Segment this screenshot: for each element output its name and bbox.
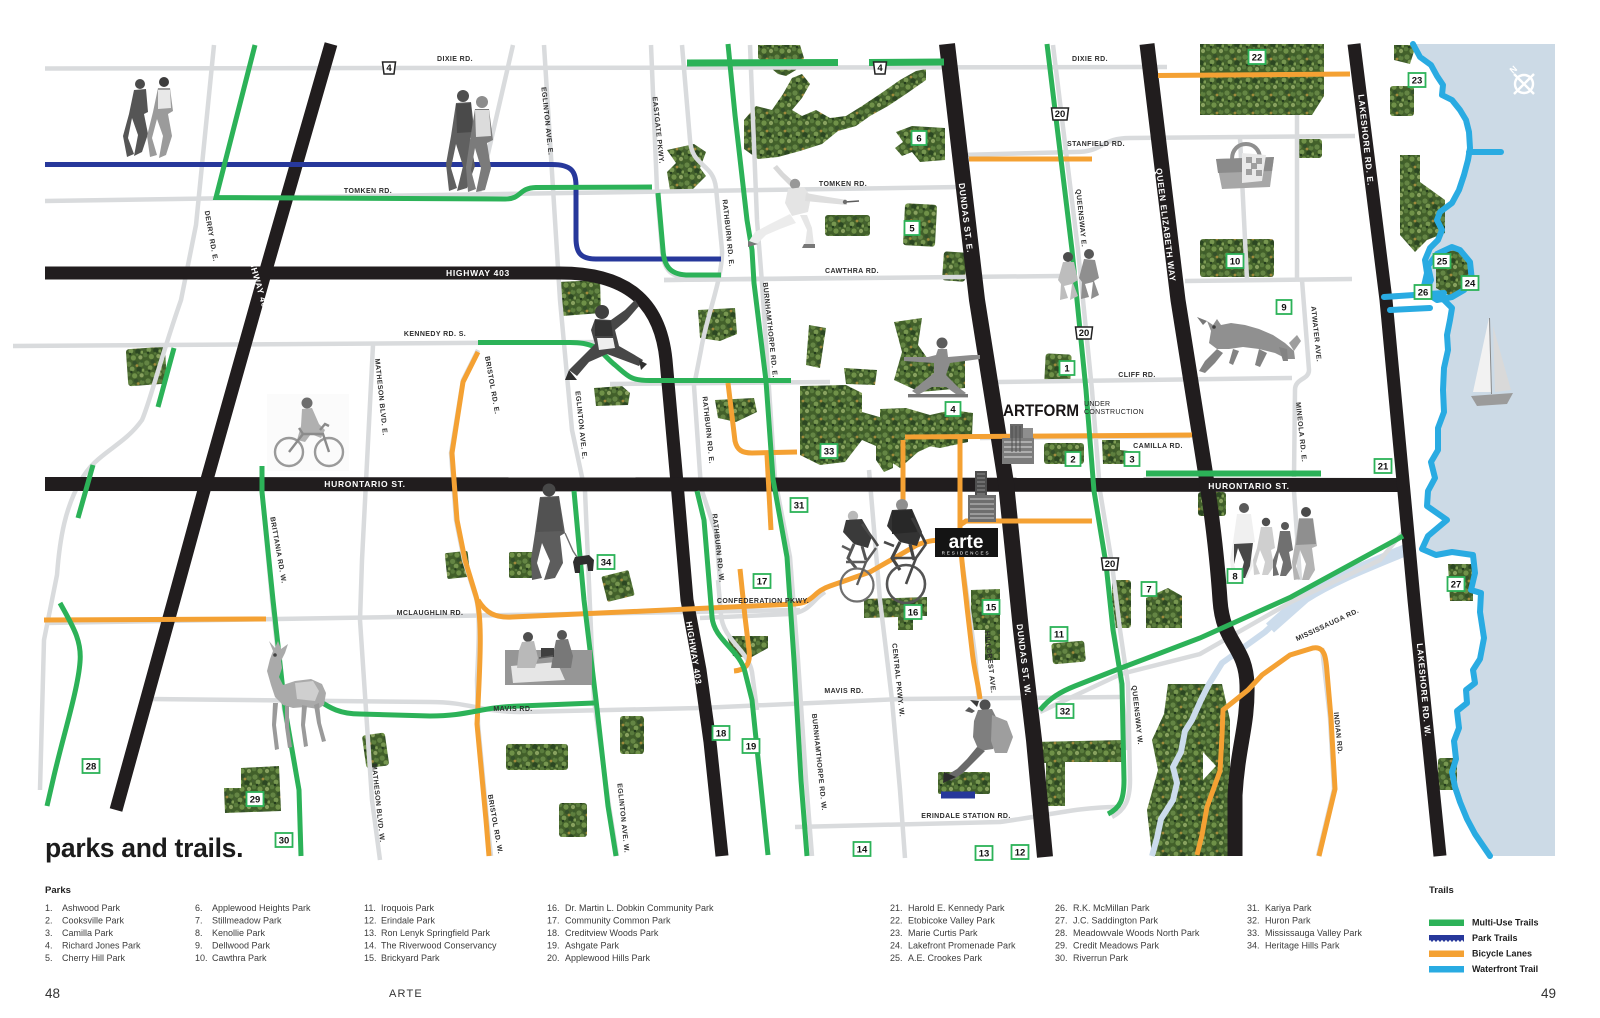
svg-text:5: 5 bbox=[909, 224, 915, 235]
svg-text:14: 14 bbox=[857, 845, 868, 856]
svg-text:Camilla Park: Camilla Park bbox=[62, 928, 114, 938]
svg-text:34: 34 bbox=[601, 558, 612, 569]
svg-text:21.: 21. bbox=[890, 903, 903, 913]
svg-text:Cooksville Park: Cooksville Park bbox=[62, 916, 125, 926]
svg-text:33: 33 bbox=[824, 447, 835, 458]
svg-text:32: 32 bbox=[1060, 707, 1071, 718]
svg-text:10: 10 bbox=[1230, 257, 1241, 268]
svg-text:29: 29 bbox=[250, 795, 261, 806]
svg-text:Credit Meadows Park: Credit Meadows Park bbox=[1073, 941, 1160, 951]
svg-text:19: 19 bbox=[746, 742, 757, 753]
svg-text:Stillmeadow Park: Stillmeadow Park bbox=[212, 916, 282, 926]
svg-text:19.: 19. bbox=[547, 941, 560, 951]
svg-text:MAVIS RD.: MAVIS RD. bbox=[493, 706, 532, 713]
svg-text:Riverrun Park: Riverrun Park bbox=[1073, 953, 1129, 963]
svg-text:21: 21 bbox=[1378, 462, 1389, 473]
svg-text:4: 4 bbox=[877, 63, 883, 74]
svg-text:HURONTARIO ST.: HURONTARIO ST. bbox=[324, 479, 405, 489]
svg-text:RESIDENCES: RESIDENCES bbox=[942, 551, 991, 556]
svg-text:Creditview Woods Park: Creditview Woods Park bbox=[565, 928, 659, 938]
svg-text:6.: 6. bbox=[195, 903, 203, 913]
svg-text:1: 1 bbox=[1064, 364, 1070, 375]
svg-text:parks and trails.: parks and trails. bbox=[45, 833, 243, 863]
svg-text:MAVIS RD.: MAVIS RD. bbox=[824, 688, 863, 695]
svg-text:20: 20 bbox=[1055, 109, 1066, 120]
svg-text:31: 31 bbox=[794, 501, 805, 512]
svg-text:8: 8 bbox=[1232, 572, 1237, 583]
svg-text:Etobicoke Valley Park: Etobicoke Valley Park bbox=[908, 916, 995, 926]
svg-text:24.: 24. bbox=[890, 941, 903, 951]
svg-text:Kenollie Park: Kenollie Park bbox=[212, 928, 266, 938]
svg-text:Huron Park: Huron Park bbox=[1265, 916, 1311, 926]
svg-text:The Riverwood Conservancy: The Riverwood Conservancy bbox=[381, 941, 497, 951]
svg-text:Bicycle Lanes: Bicycle Lanes bbox=[1472, 949, 1532, 959]
svg-text:Meadowvale Woods North Park: Meadowvale Woods North Park bbox=[1073, 928, 1200, 938]
svg-text:30.: 30. bbox=[1055, 953, 1068, 963]
svg-text:22.: 22. bbox=[890, 916, 903, 926]
svg-text:Community Common Park: Community Common Park bbox=[565, 916, 671, 926]
svg-text:ERINDALE STATION RD.: ERINDALE STATION RD. bbox=[921, 813, 1010, 820]
svg-text:20: 20 bbox=[1079, 328, 1090, 339]
svg-text:26: 26 bbox=[1418, 288, 1429, 299]
svg-text:49: 49 bbox=[1541, 986, 1556, 1001]
svg-text:Parks: Parks bbox=[45, 885, 71, 896]
svg-text:Multi-Use Trails: Multi-Use Trails bbox=[1472, 918, 1539, 928]
svg-text:15.: 15. bbox=[364, 953, 377, 963]
svg-text:2.: 2. bbox=[45, 916, 53, 926]
svg-text:13: 13 bbox=[979, 849, 990, 860]
svg-text:Kariya Park: Kariya Park bbox=[1265, 903, 1312, 913]
svg-text:9: 9 bbox=[1281, 303, 1286, 314]
svg-text:28: 28 bbox=[86, 762, 97, 773]
svg-text:Ron Lenyk Springfield Park: Ron Lenyk Springfield Park bbox=[381, 928, 491, 938]
svg-text:Heritage Hills Park: Heritage Hills Park bbox=[1265, 941, 1340, 951]
svg-text:TOMKEN RD.: TOMKEN RD. bbox=[819, 181, 867, 188]
svg-text:Marie Curtis Park: Marie Curtis Park bbox=[908, 928, 978, 938]
svg-text:12: 12 bbox=[1015, 848, 1026, 859]
svg-text:11.: 11. bbox=[364, 903, 376, 913]
svg-text:UNDER: UNDER bbox=[1084, 401, 1110, 408]
svg-text:14.: 14. bbox=[364, 941, 377, 951]
svg-text:7: 7 bbox=[1146, 585, 1151, 596]
svg-text:J.C. Saddington Park: J.C. Saddington Park bbox=[1073, 916, 1159, 926]
svg-text:4: 4 bbox=[950, 405, 956, 416]
svg-text:Park Trails: Park Trails bbox=[1472, 933, 1518, 943]
svg-text:25: 25 bbox=[1437, 257, 1448, 268]
svg-text:28.: 28. bbox=[1055, 928, 1068, 938]
svg-text:Cherry Hill Park: Cherry Hill Park bbox=[62, 953, 126, 963]
svg-text:33.: 33. bbox=[1247, 928, 1260, 938]
svg-text:3: 3 bbox=[1129, 455, 1134, 466]
svg-text:Cawthra Park: Cawthra Park bbox=[212, 953, 267, 963]
svg-text:4: 4 bbox=[386, 63, 392, 74]
svg-text:MCLAUGHLIN RD.: MCLAUGHLIN RD. bbox=[397, 610, 464, 617]
svg-text:15: 15 bbox=[986, 603, 997, 614]
svg-text:16.: 16. bbox=[547, 903, 560, 913]
svg-text:13.: 13. bbox=[364, 928, 377, 938]
svg-text:18.: 18. bbox=[547, 928, 560, 938]
svg-text:CONSTRUCTION: CONSTRUCTION bbox=[1084, 409, 1144, 416]
svg-text:CAMILLA RD.: CAMILLA RD. bbox=[1133, 443, 1183, 450]
svg-text:30: 30 bbox=[279, 836, 290, 847]
svg-text:27.: 27. bbox=[1055, 916, 1068, 926]
svg-text:32.: 32. bbox=[1247, 916, 1260, 926]
svg-text:23.: 23. bbox=[890, 928, 903, 938]
svg-text:Richard Jones Park: Richard Jones Park bbox=[62, 941, 141, 951]
svg-text:1.: 1. bbox=[45, 903, 53, 913]
svg-text:TOMKEN RD.: TOMKEN RD. bbox=[344, 188, 392, 195]
svg-text:29.: 29. bbox=[1055, 941, 1068, 951]
svg-text:A.E. Crookes Park: A.E. Crookes Park bbox=[908, 953, 983, 963]
svg-text:7.: 7. bbox=[195, 916, 203, 926]
svg-text:10.: 10. bbox=[195, 953, 208, 963]
svg-text:9.: 9. bbox=[195, 941, 203, 951]
svg-text:STANFIELD RD.: STANFIELD RD. bbox=[1067, 141, 1125, 148]
svg-text:5.: 5. bbox=[45, 953, 53, 963]
svg-text:CLIFF RD.: CLIFF RD. bbox=[1118, 372, 1155, 379]
svg-text:6: 6 bbox=[916, 134, 921, 145]
svg-text:Erindale Park: Erindale Park bbox=[381, 916, 436, 926]
svg-text:Harold E. Kennedy Park: Harold E. Kennedy Park bbox=[908, 903, 1005, 913]
svg-text:8.: 8. bbox=[195, 928, 203, 938]
svg-text:Ashgate Park: Ashgate Park bbox=[565, 941, 620, 951]
svg-text:CAWTHRA RD.: CAWTHRA RD. bbox=[825, 268, 879, 275]
svg-text:17.: 17. bbox=[547, 916, 560, 926]
svg-text:17: 17 bbox=[757, 577, 768, 588]
svg-text:27: 27 bbox=[1451, 580, 1462, 591]
svg-text:18: 18 bbox=[716, 729, 727, 740]
svg-text:Iroquois Park: Iroquois Park bbox=[381, 903, 435, 913]
svg-text:ARTFORM: ARTFORM bbox=[1003, 402, 1079, 420]
svg-text:26.: 26. bbox=[1055, 903, 1068, 913]
svg-text:12.: 12. bbox=[364, 916, 377, 926]
svg-text:ARTE: ARTE bbox=[389, 988, 423, 1000]
svg-text:25.: 25. bbox=[890, 953, 903, 963]
svg-text:Dellwood Park: Dellwood Park bbox=[212, 941, 271, 951]
svg-text:Waterfront Trail: Waterfront Trail bbox=[1472, 964, 1538, 974]
svg-text:23: 23 bbox=[1412, 76, 1423, 87]
svg-text:KENNEDY RD. S.: KENNEDY RD. S. bbox=[404, 331, 466, 338]
svg-text:20.: 20. bbox=[547, 953, 560, 963]
svg-text:22: 22 bbox=[1252, 53, 1263, 64]
svg-text:48: 48 bbox=[45, 986, 60, 1001]
svg-text:11: 11 bbox=[1054, 630, 1065, 641]
svg-text:3.: 3. bbox=[45, 928, 53, 938]
svg-text:16: 16 bbox=[908, 608, 919, 619]
svg-text:31.: 31. bbox=[1247, 903, 1260, 913]
svg-text:HURONTARIO ST.: HURONTARIO ST. bbox=[1208, 481, 1289, 491]
svg-text:HIGHWAY 403: HIGHWAY 403 bbox=[446, 268, 510, 278]
svg-text:Brickyard Park: Brickyard Park bbox=[381, 953, 440, 963]
svg-text:CONFEDERATION PKWY.: CONFEDERATION PKWY. bbox=[717, 598, 809, 605]
svg-text:Ashwood Park: Ashwood Park bbox=[62, 903, 121, 913]
svg-text:24: 24 bbox=[1465, 279, 1476, 290]
svg-text:Mississauga Valley Park: Mississauga Valley Park bbox=[1265, 928, 1362, 938]
svg-text:2: 2 bbox=[1070, 455, 1075, 466]
svg-text:DIXIE RD.: DIXIE RD. bbox=[437, 56, 473, 63]
svg-text:Applewood Hills Park: Applewood Hills Park bbox=[565, 953, 651, 963]
svg-text:4.: 4. bbox=[45, 941, 53, 951]
svg-text:Lakefront Promenade Park: Lakefront Promenade Park bbox=[908, 941, 1016, 951]
svg-text:34.: 34. bbox=[1247, 941, 1260, 951]
svg-text:Trails: Trails bbox=[1429, 885, 1454, 896]
svg-text:20: 20 bbox=[1105, 559, 1116, 570]
svg-text:R.K. McMillan Park: R.K. McMillan Park bbox=[1073, 903, 1150, 913]
svg-text:DIXIE RD.: DIXIE RD. bbox=[1072, 56, 1108, 63]
svg-text:Dr. Martin L. Dobkin Community: Dr. Martin L. Dobkin Community Park bbox=[565, 903, 714, 913]
svg-text:Applewood Heights Park: Applewood Heights Park bbox=[212, 903, 311, 913]
